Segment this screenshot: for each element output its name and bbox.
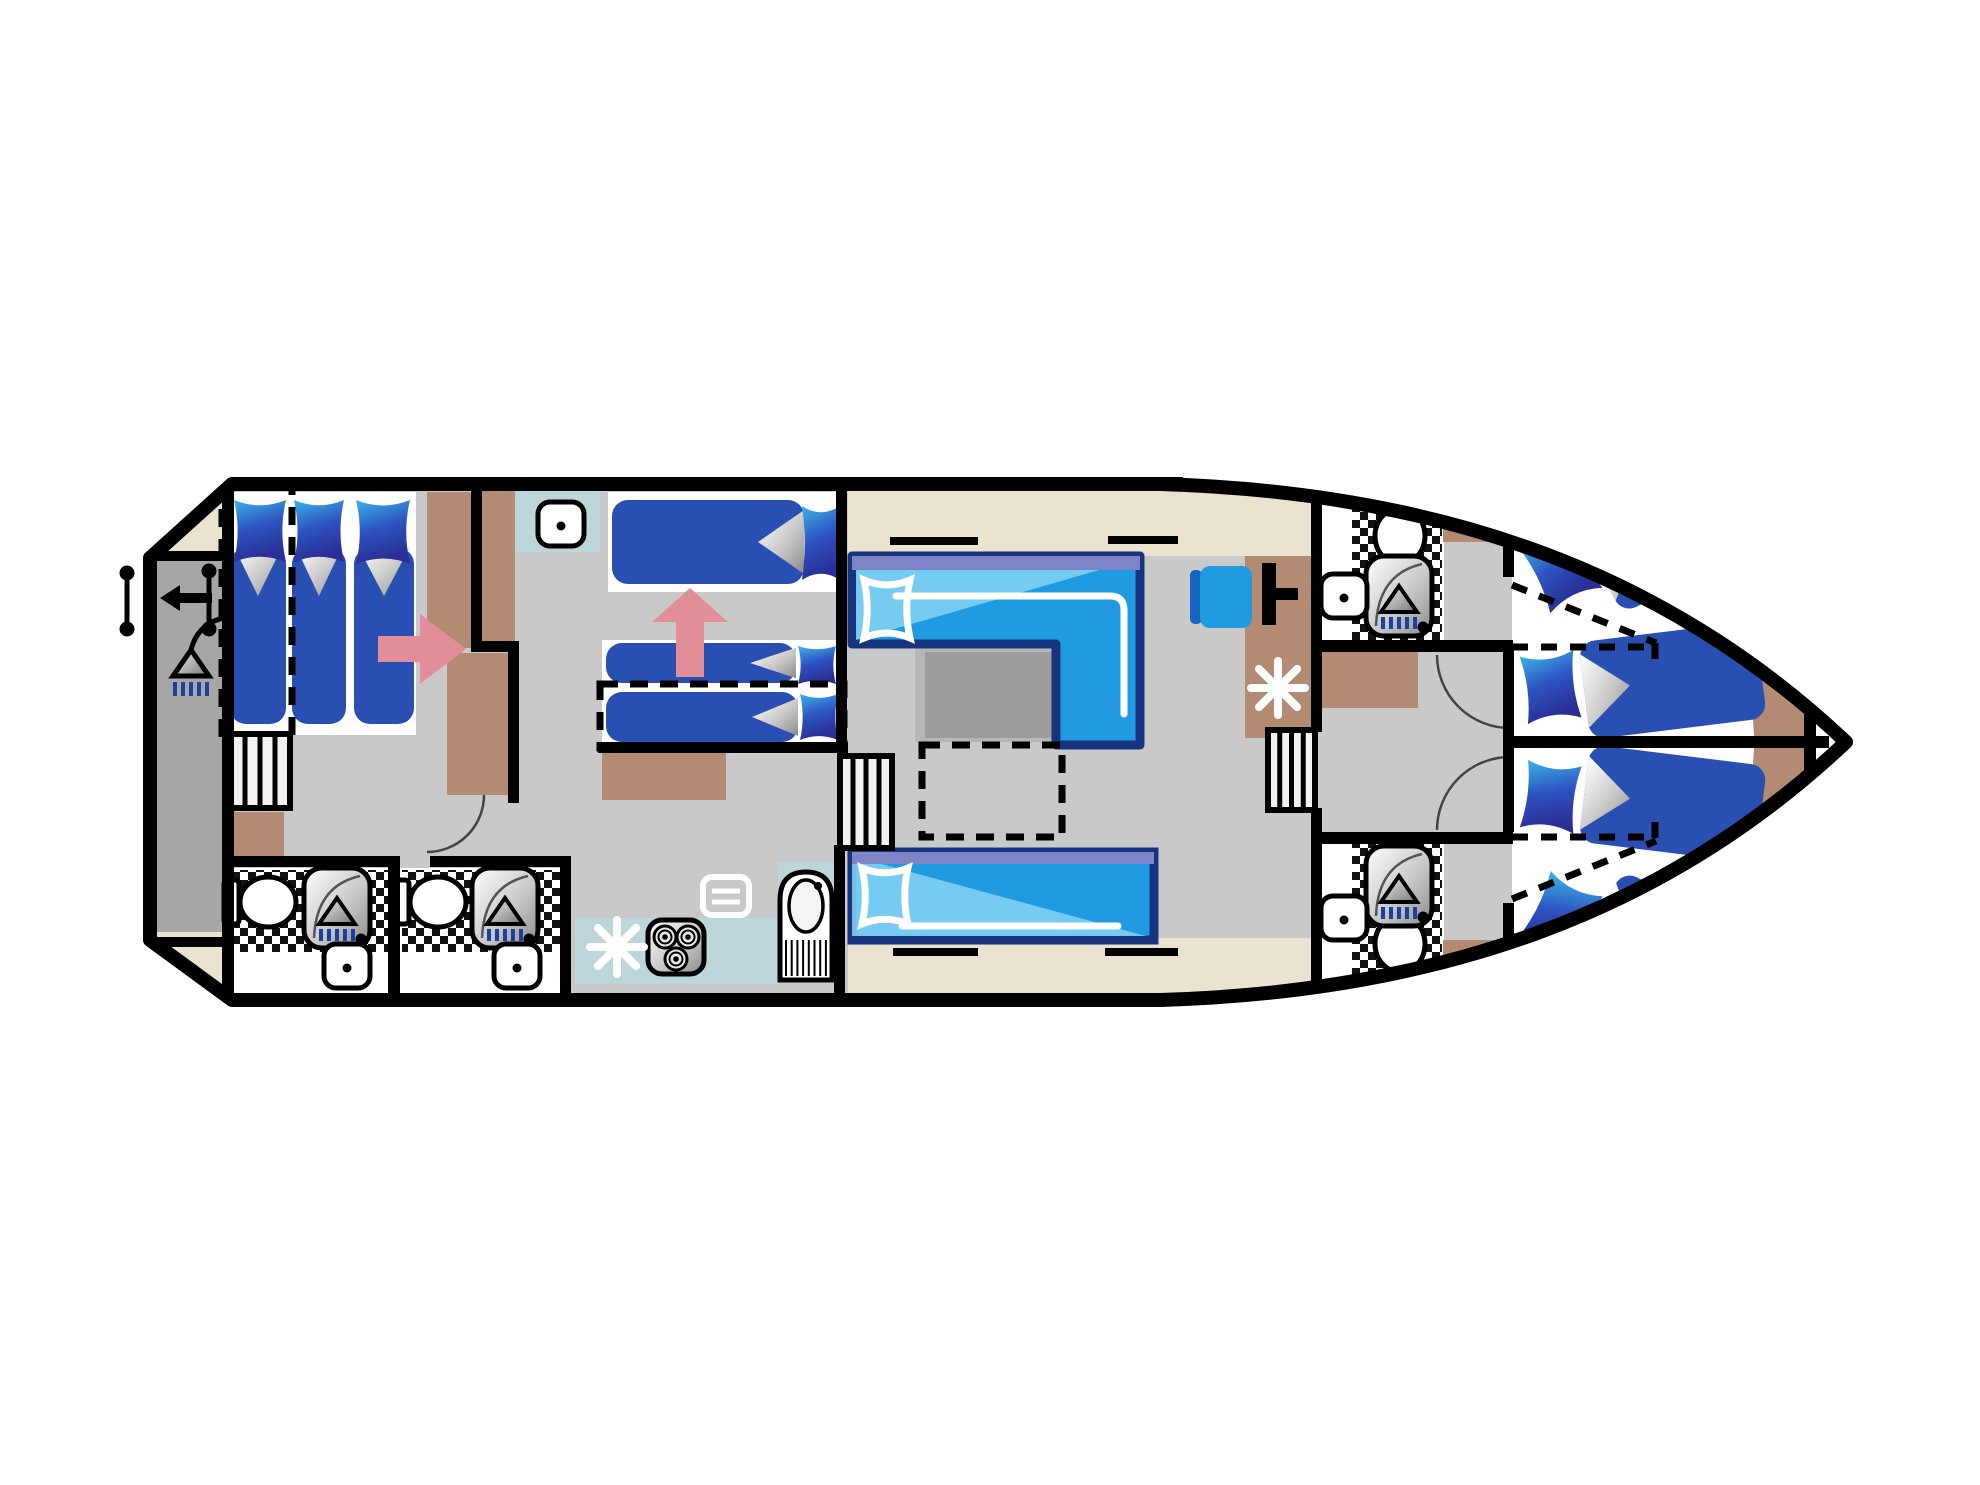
fwd-bathroom-top-sink <box>1321 574 1367 618</box>
bow-cabin-stbd-bed-inner-pillow <box>1520 760 1582 834</box>
cabinet-6 <box>1320 652 1418 708</box>
fwd-bathroom-bottom-shower <box>1366 846 1432 926</box>
window-bar-3 <box>1105 948 1178 956</box>
mid-cabin-bed-pillow <box>802 506 840 580</box>
aft-cabin-bed-1 <box>230 500 286 724</box>
wall-8 <box>388 856 400 1000</box>
cabinet-1 <box>477 490 515 648</box>
galley-fridge <box>780 872 832 980</box>
sofa-bottom-backrest <box>852 852 1154 864</box>
swim-ladder-icon-end <box>120 622 135 637</box>
bow-cabin-port-bed-inner-pillow <box>1520 650 1582 724</box>
wall-20 <box>1513 736 1829 748</box>
cabinet-4 <box>602 750 726 800</box>
mid-cabin-vanity-sink <box>538 502 584 546</box>
aft-bathroom-2-sink <box>494 944 540 988</box>
aft-bathroom-1-shower <box>304 868 370 948</box>
fwd-bathroom-bottom-shower-drain <box>1418 912 1429 923</box>
mid-cabin-bed <box>612 500 840 584</box>
salon-port-stairs <box>840 756 892 848</box>
boat-floor-plan-canvas <box>0 0 1980 1485</box>
deck-hatch-bar <box>1103 477 1183 490</box>
mid-cabin-pullout-upper <box>606 643 836 684</box>
fwd-bathroom-top-sink-drain <box>1340 594 1349 603</box>
salon-sofa-bottom <box>852 852 1154 940</box>
swim-ladder-icon <box>120 566 135 637</box>
aft-cabin-bed-3-pillow <box>356 500 410 564</box>
aft-bathroom-2-shower <box>472 868 538 948</box>
helm-seat <box>1200 566 1252 628</box>
helm-console-0 <box>1262 563 1276 625</box>
aft-bathroom-1-sink <box>324 944 370 988</box>
cooktop-burner-dot <box>662 934 668 940</box>
wall-14 <box>1311 808 1322 1000</box>
wall-17 <box>1503 487 1514 577</box>
cabinet-3 <box>228 812 284 860</box>
window-bar-2 <box>893 948 978 956</box>
cabinet-2 <box>447 653 509 795</box>
mid-cabin-pullout-upper-pillow <box>798 646 836 684</box>
wall-19 <box>1503 903 1514 1002</box>
stern-rail-icon-end <box>202 622 217 637</box>
wall-13 <box>1311 487 1322 732</box>
salon-table-top <box>925 652 1062 738</box>
fridge-dot <box>814 882 822 890</box>
galley-heater-icon <box>590 920 644 974</box>
fwd-bathroom-top-shower <box>1366 556 1432 636</box>
aft-cabin-bed-3 <box>354 500 414 724</box>
aft-deck-platform <box>150 560 224 938</box>
wall-18 <box>1503 648 1514 832</box>
aft-bathroom-1-toilet-bowl <box>240 877 296 927</box>
wall-21 <box>1804 644 1816 844</box>
wall-15 <box>1321 640 1513 652</box>
cooktop-burner-dot <box>673 956 679 962</box>
wall-3 <box>471 487 482 647</box>
aft-cabin-bed-2-pillow <box>294 500 344 562</box>
swim-ladder-icon-end <box>120 566 135 581</box>
boat-interior <box>150 437 1854 1047</box>
wall-11 <box>598 742 848 753</box>
cooktop-burner-dot <box>685 934 691 940</box>
sofa-top-backrest <box>852 556 1140 570</box>
wall-16 <box>1321 832 1513 844</box>
wall-7 <box>430 856 570 867</box>
salon-stbd-stairs <box>1268 730 1315 810</box>
wall-5 <box>508 648 519 803</box>
mid-cabin-pullout-lower-pillow <box>800 694 838 740</box>
stern-rail-icon-end <box>202 564 217 579</box>
cream-deck-2 <box>848 488 1315 556</box>
aft-cabin-bed-1-pillow <box>234 500 286 562</box>
fwd-bathroom-bottom-sink-drain <box>1340 916 1349 925</box>
fwd-bathroom-top-shower-drain <box>1418 622 1429 633</box>
aft-bathroom-1-toilet <box>224 877 296 927</box>
fwd-bathroom-bottom-sink <box>1321 896 1367 940</box>
aft-bathroom-2-sink-drain <box>513 964 522 973</box>
aft-cabin-stairs <box>230 734 290 808</box>
wall-6 <box>232 856 390 867</box>
boat-floor-plan <box>0 0 1980 1485</box>
mid-cabin-vanity-sink-drain <box>557 522 566 531</box>
galley-cooktop <box>648 920 704 974</box>
aft-bathroom-2-toilet-bowl <box>410 877 466 927</box>
aft-cabin-bed-2 <box>292 500 346 724</box>
aft-bathroom-2-toilet <box>394 877 466 927</box>
mid-cabin-pullout-lower <box>606 692 838 742</box>
helm-console-1 <box>1276 588 1298 600</box>
aft-bathroom-1-sink-drain <box>343 964 352 973</box>
window-bar-1 <box>1108 536 1178 544</box>
window-bar-0 <box>890 537 978 545</box>
wall-0 <box>222 484 234 1002</box>
wall-12 <box>834 845 845 1000</box>
wall-9 <box>560 856 571 1000</box>
wall-10 <box>836 487 847 747</box>
salon-heater-icon <box>1251 661 1305 715</box>
